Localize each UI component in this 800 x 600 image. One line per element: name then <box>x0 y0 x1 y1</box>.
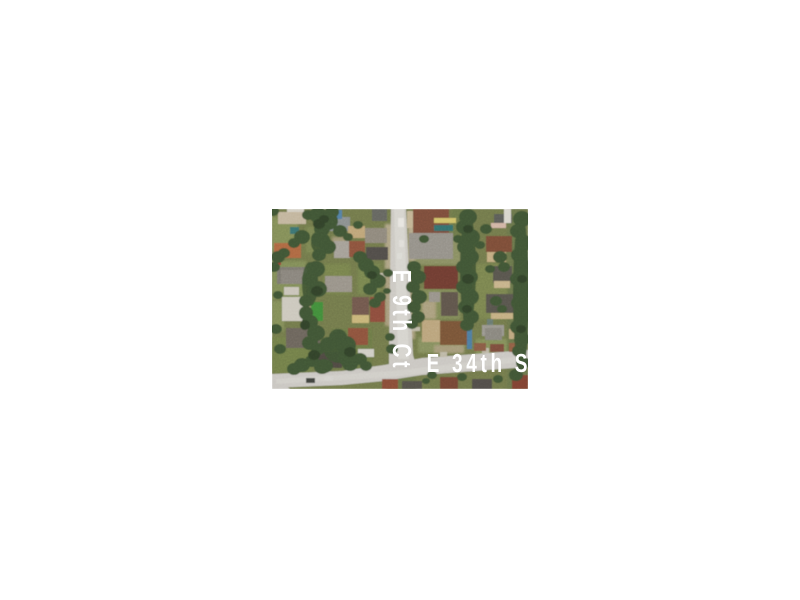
svg-text:E 9th Ct: E 9th Ct <box>387 270 417 371</box>
svg-text:E 34th S: E 34th S <box>427 348 528 378</box>
